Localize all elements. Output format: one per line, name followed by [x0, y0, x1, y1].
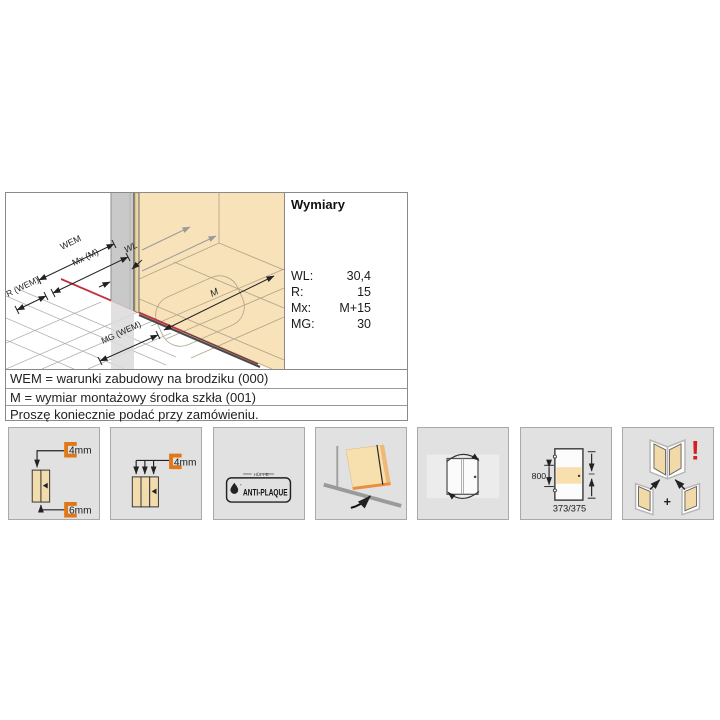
note-line: Proszę koniecznie podać przy zamówieniu.	[6, 405, 407, 423]
page: WEM Mx (M) R (WEM) WL M MG (WEM) Wymiary…	[0, 0, 720, 720]
glass-thickness-triple-4mm-icon: 4mm	[110, 427, 202, 520]
door-swing-over-tray-icon	[315, 427, 407, 520]
dim-value: 30	[327, 316, 371, 332]
door-handle	[474, 476, 477, 479]
dimensions-table: Wymiary WL: 30,4 R: 15 Mx: M+15	[284, 193, 407, 369]
droplet-icon	[230, 483, 238, 494]
swing-arrow	[351, 496, 370, 508]
door-double-swing-icon	[417, 427, 509, 520]
alert-exclamation: !	[691, 434, 700, 465]
table-row: MG: 30	[291, 316, 407, 332]
svg-text:’: ’	[240, 484, 242, 491]
dim-label: WL:	[291, 268, 327, 284]
corner-combination-icon: ! +	[622, 427, 714, 520]
brand-label: HÜPPE	[253, 472, 268, 477]
dim-value: M+15	[327, 300, 371, 316]
dim-value: 30,4	[327, 268, 371, 284]
entry-dimensions-icon: 800 373/375	[520, 427, 612, 520]
dimensions-panel: WEM Mx (M) R (WEM) WL M MG (WEM) Wymiary…	[5, 192, 408, 421]
anti-plaque-badge-icon: HÜPPE ’ ANTI-PLAQUE	[213, 427, 305, 520]
glass-profile-strip	[135, 193, 139, 313]
glass-thickness-4-6mm-icon: 4mm 6mm	[8, 427, 100, 520]
feature-icons-row: 4mm 6mm 4mm	[8, 427, 714, 520]
table-row: WL: 30,4	[291, 268, 407, 284]
installation-diagram-svg: WEM Mx (M) R (WEM) WL M MG (WEM)	[6, 193, 284, 369]
dim-label: R:	[291, 284, 327, 300]
installation-diagram: WEM Mx (M) R (WEM) WL M MG (WEM)	[6, 193, 284, 369]
single-panel-right	[685, 487, 697, 511]
mx-label: Mx (M)	[70, 247, 100, 268]
wall-profile	[111, 193, 139, 369]
door-outline	[447, 459, 478, 495]
thickness-bottom-label: 6mm	[69, 506, 92, 517]
r-label: R (WEM)	[6, 274, 40, 298]
legend-notes: WEM = warunki zabudowy na brodziku (000)…	[6, 369, 407, 423]
dimensions-title: Wymiary	[291, 197, 407, 212]
width-label: 373/375	[553, 504, 586, 514]
height-label: 800	[531, 471, 546, 481]
wem-label: WEM	[58, 233, 82, 252]
single-panel-left	[638, 487, 650, 511]
note-line: M = wymiar montażowy środka szkła (001)	[6, 388, 407, 406]
dim-label: MG:	[291, 316, 327, 332]
table-row: R: 15	[291, 284, 407, 300]
thickness-label: 4mm	[174, 457, 197, 468]
table-row: Mx: M+15	[291, 300, 407, 316]
note-line: WEM = warunki zabudowy na brodziku (000)	[6, 370, 407, 388]
dim-label: Mx:	[291, 300, 327, 316]
plus-sign: +	[664, 495, 671, 509]
anti-plaque-label: ANTI-PLAQUE	[243, 487, 288, 497]
thickness-top-label: 4mm	[69, 446, 92, 457]
dim-value: 15	[327, 284, 371, 300]
